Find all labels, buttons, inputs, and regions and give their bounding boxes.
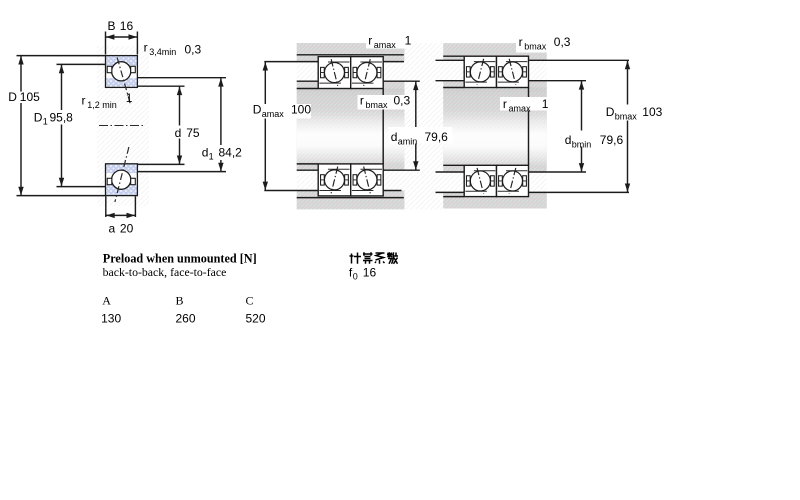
svg-text:D: D bbox=[8, 90, 17, 104]
svg-text:79,6: 79,6 bbox=[425, 130, 449, 144]
svg-text:1: 1 bbox=[209, 152, 214, 162]
svg-text:520: 520 bbox=[246, 311, 266, 325]
svg-text:d: d bbox=[565, 133, 572, 147]
svg-text:79,6: 79,6 bbox=[600, 133, 624, 147]
svg-text:amin: amin bbox=[398, 136, 418, 146]
svg-text:r: r bbox=[519, 35, 523, 49]
svg-text:amax: amax bbox=[262, 109, 285, 119]
svg-text:0,3: 0,3 bbox=[185, 43, 202, 57]
svg-text:1: 1 bbox=[405, 34, 412, 48]
svg-text:B: B bbox=[176, 294, 184, 308]
svg-text:C: C bbox=[246, 294, 254, 308]
svg-text:bmin: bmin bbox=[572, 139, 592, 149]
svg-text:95,8: 95,8 bbox=[50, 111, 74, 125]
svg-text:0: 0 bbox=[353, 271, 358, 281]
svg-text:100: 100 bbox=[291, 103, 311, 117]
svg-text:back-to-back, face-to-face: back-to-back, face-to-face bbox=[103, 265, 227, 279]
svg-text:3,4min: 3,4min bbox=[149, 47, 176, 57]
svg-text:105: 105 bbox=[20, 90, 40, 104]
svg-text:amax: amax bbox=[509, 103, 532, 113]
svg-text:1: 1 bbox=[43, 117, 48, 127]
svg-text:bmax: bmax bbox=[615, 111, 638, 121]
svg-text:0,3: 0,3 bbox=[554, 35, 571, 49]
svg-text:r: r bbox=[503, 97, 507, 111]
svg-text:D: D bbox=[34, 111, 43, 125]
svg-text:bmax: bmax bbox=[366, 100, 389, 110]
svg-text:1: 1 bbox=[542, 97, 549, 111]
svg-text:D: D bbox=[253, 103, 262, 117]
svg-text:r: r bbox=[144, 40, 148, 54]
svg-text:d: d bbox=[391, 130, 398, 144]
svg-text:130: 130 bbox=[101, 311, 121, 325]
svg-text:a: a bbox=[109, 221, 116, 235]
svg-text:0,3: 0,3 bbox=[394, 94, 411, 108]
svg-text:r: r bbox=[360, 94, 364, 108]
svg-text:1,2 min: 1,2 min bbox=[87, 100, 117, 110]
svg-text:16: 16 bbox=[120, 19, 134, 33]
svg-text:d: d bbox=[175, 126, 182, 140]
svg-text:260: 260 bbox=[176, 311, 196, 325]
svg-text:r: r bbox=[368, 34, 372, 48]
svg-text:1: 1 bbox=[126, 91, 133, 105]
svg-text:16: 16 bbox=[363, 265, 377, 279]
svg-text:D: D bbox=[606, 105, 615, 119]
svg-text:B: B bbox=[108, 19, 116, 33]
svg-text:r: r bbox=[82, 93, 86, 107]
svg-text:bmax: bmax bbox=[524, 42, 547, 52]
svg-text:amax: amax bbox=[374, 40, 397, 50]
svg-text:84,2: 84,2 bbox=[219, 146, 243, 160]
svg-text:Preload when unmounted [N]: Preload when unmounted [N] bbox=[103, 252, 257, 266]
svg-text:d: d bbox=[202, 146, 209, 160]
svg-text:20: 20 bbox=[120, 221, 134, 235]
svg-text:75: 75 bbox=[186, 126, 200, 140]
svg-text:A: A bbox=[102, 294, 111, 308]
svg-text:103: 103 bbox=[642, 105, 662, 119]
